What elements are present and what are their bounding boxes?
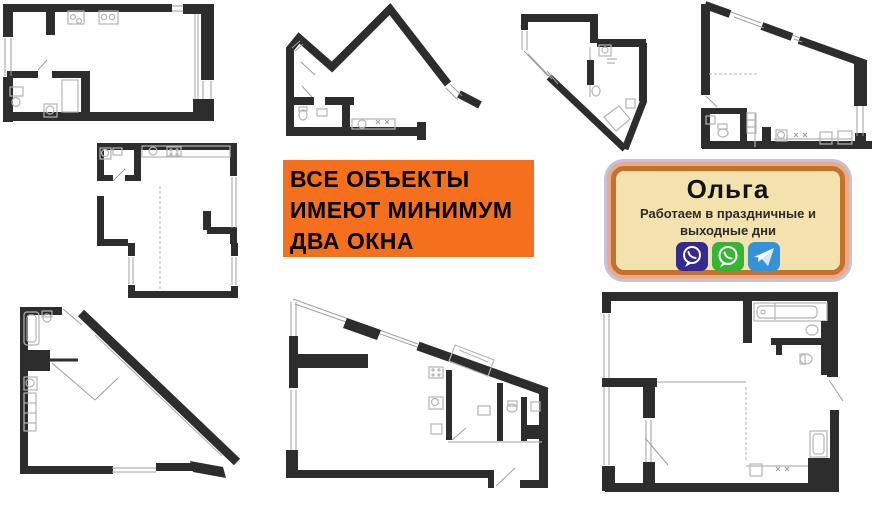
viber-icon[interactable] <box>676 242 708 271</box>
contact-subtitle-line-2: выходные дни <box>616 222 840 239</box>
contact-card: Ольга Работаем в праздничные и выходные … <box>611 166 845 275</box>
contact-subtitle-line-1: Работаем в праздничные и <box>616 205 840 222</box>
two-windows-banner: ВСЕ ОБЪЕКТЫ ИМЕЮТ МИНИМУМ ДВА ОКНА <box>283 160 534 257</box>
banner-line-3: ДВА ОКНА <box>290 226 534 257</box>
floorplan-top-middle <box>286 9 480 140</box>
floorplan-bottom-left <box>20 307 237 478</box>
banner-line-1: ВСЕ ОБЪЕКТЫ <box>290 164 534 195</box>
floorplan-bottom-middle <box>286 299 548 488</box>
banner-line-2: ИМЕЮТ МИНИМУМ <box>290 195 534 226</box>
contact-name: Ольга <box>616 174 840 205</box>
floorplan-top-left <box>3 4 214 122</box>
whatsapp-icon[interactable] <box>712 242 744 271</box>
floorplan-top-center-right <box>521 14 647 149</box>
floorplan-top-right <box>701 4 872 149</box>
flyer-canvas: ВСЕ ОБЪЕКТЫ ИМЕЮТ МИНИМУМ ДВА ОКНА Ольга… <box>0 0 888 512</box>
floorplan-middle-left <box>97 143 238 298</box>
messenger-icons <box>616 242 840 271</box>
floorplan-bottom-right <box>602 292 843 492</box>
telegram-icon[interactable] <box>748 242 780 271</box>
